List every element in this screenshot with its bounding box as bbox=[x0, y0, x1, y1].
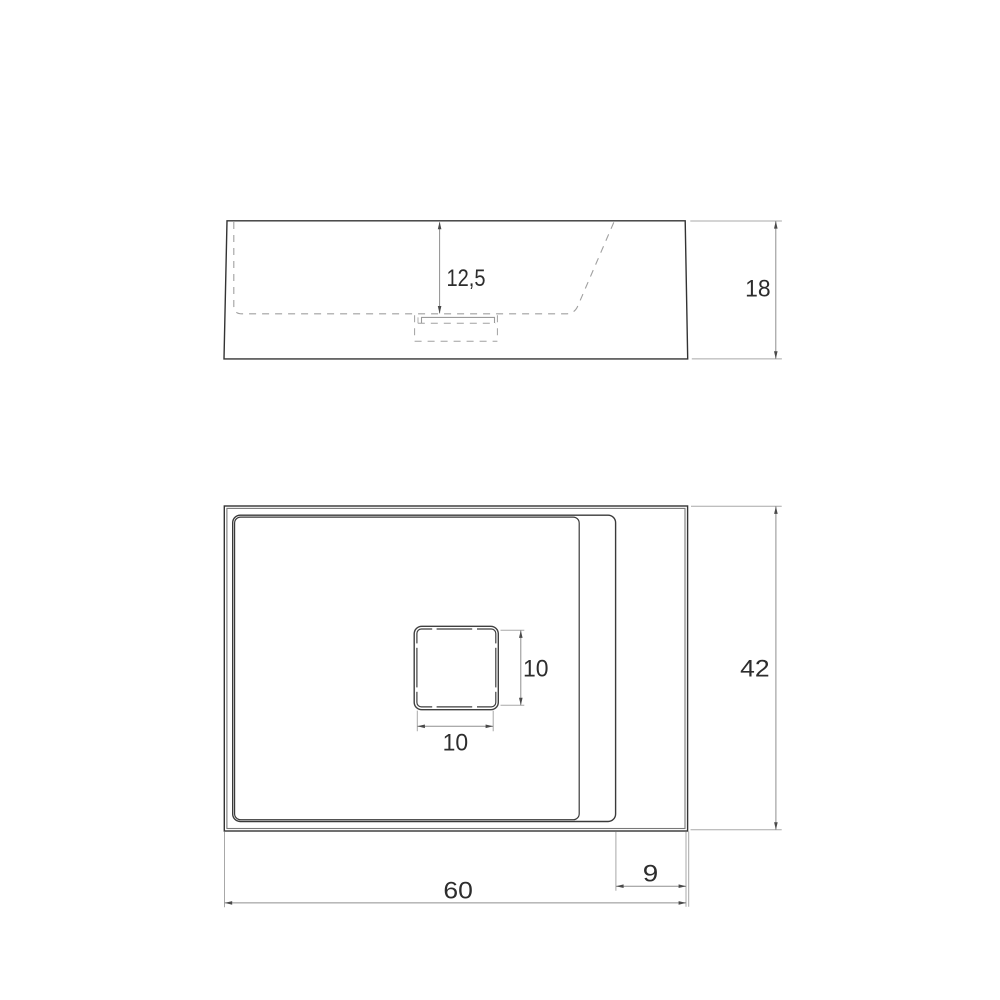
svg-text:10: 10 bbox=[523, 656, 549, 683]
svg-text:10: 10 bbox=[443, 729, 469, 756]
svg-text:18: 18 bbox=[745, 275, 771, 302]
svg-text:42: 42 bbox=[740, 656, 770, 683]
svg-text:9: 9 bbox=[643, 860, 659, 887]
svg-text:60: 60 bbox=[443, 877, 473, 904]
svg-text:12,5: 12,5 bbox=[447, 265, 486, 292]
